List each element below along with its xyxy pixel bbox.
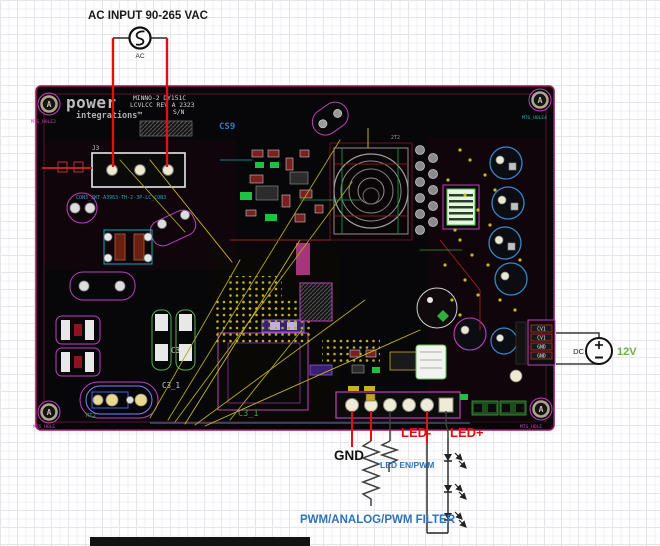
- svg-text:C3_1: C3_1: [162, 381, 180, 390]
- refdes-cs9: CS9: [219, 122, 235, 132]
- mtg-hole-label: MTG_HOLE: [520, 424, 542, 430]
- dc-output-connector: CV1 CV1 GND GND: [516, 320, 555, 365]
- pcb-board: A MTG_HOLE2 A MTG_HOLE4 A MTG_HOLE A MTG…: [31, 86, 555, 430]
- via-grid: [216, 300, 312, 346]
- pin-label-gnd-b: GND: [537, 354, 546, 360]
- ic-bright-2: [416, 345, 446, 379]
- resistor-symbol-1: [363, 441, 379, 506]
- led-plus-label: LED+: [450, 425, 484, 440]
- mtg-hole-label: MTG_HOLE2: [31, 119, 56, 125]
- wire: [556, 333, 599, 338]
- dc-output-circuit: DC 12V: [556, 333, 637, 364]
- svg-text:power: power: [66, 93, 117, 112]
- pwm-filter-label: PWM/ANALOG/PWM FILTER: [300, 514, 456, 526]
- ac-source-icon: [130, 28, 151, 49]
- svg-text:integrations™: integrations™: [76, 110, 143, 121]
- pin-label-cv1-a: CV1: [537, 327, 546, 333]
- pcb-annotation-drawing: A MTG_HOLE2 A MTG_HOLE4 A MTG_HOLE A MTG…: [0, 0, 660, 546]
- pin-label-cv1-b: CV1: [537, 336, 546, 342]
- svg-text:C3_1: C3_1: [238, 409, 258, 419]
- svg-text:MINNO-2 DY151C: MINNO-2 DY151C: [133, 95, 186, 102]
- pin-label-gnd-a: GND: [537, 345, 546, 351]
- dc-source-label: DC: [573, 347, 584, 356]
- grid-background: A MTG_HOLE2 A MTG_HOLE4 A MTG_HOLE A MTG…: [0, 0, 660, 546]
- hole-letter: A: [539, 405, 544, 414]
- svg-text:RT2: RT2: [86, 413, 96, 419]
- svg-text:J3: J3: [92, 145, 100, 152]
- svg-text:S/N: S/N: [173, 109, 185, 116]
- electrolytic-cap-large: [417, 288, 457, 328]
- svg-text:LCVLCC REV A 2323: LCVLCC REV A 2323: [130, 102, 195, 109]
- mtg-hole-label: MTG_HOLE: [33, 424, 55, 430]
- svg-text:C3: C3: [171, 346, 180, 355]
- gnd-label: GND: [334, 448, 364, 463]
- ic-bright: [443, 185, 479, 229]
- dc-source-icon: [586, 338, 612, 364]
- hole-letter: A: [47, 408, 52, 417]
- hole-letter: A: [47, 100, 52, 109]
- led-en-pwm-label: LED EN/PWM: [380, 460, 434, 470]
- led-minus-label: LED-: [401, 425, 431, 440]
- ac-input-title: AC INPUT 90-265 VAC: [88, 10, 208, 22]
- ac-source-label: AC: [135, 53, 144, 60]
- mtg-hole-label: MTG_HOLE4: [522, 115, 547, 121]
- bottom-dark-bar: [90, 537, 310, 546]
- dc-voltage-label: 12V: [617, 346, 637, 358]
- refdes-t2: 2T2: [391, 135, 400, 141]
- hole-letter: A: [538, 96, 543, 105]
- transformer-toroid: [330, 128, 412, 240]
